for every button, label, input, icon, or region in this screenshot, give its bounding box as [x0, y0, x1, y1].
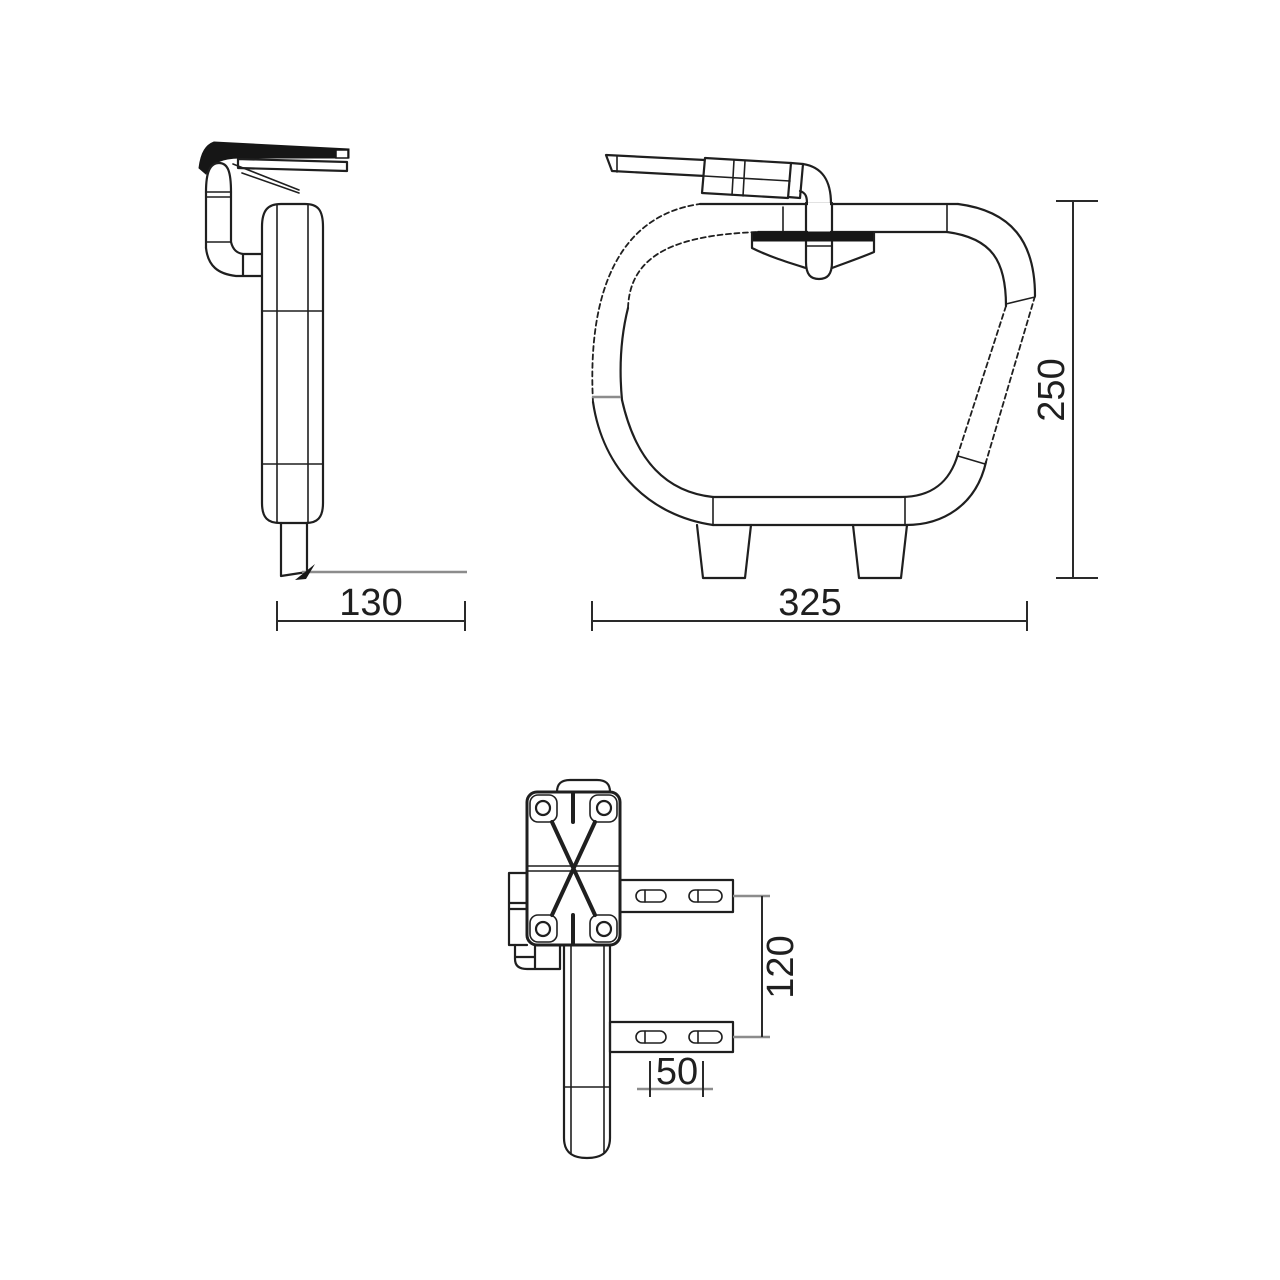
clamp-bar [752, 232, 874, 241]
ring-inner-topleft-arc [628, 232, 758, 308]
arm-tube-lines [206, 192, 231, 242]
ring-inner-diagonal [958, 306, 1006, 454]
dim-120-label: 120 [760, 935, 802, 998]
arm-elbow [206, 242, 262, 276]
ring-outer-topleft-arc [592, 204, 700, 402]
dimension-bracket-spacing: 120 [733, 896, 802, 1037]
upper-slot-bracket [620, 880, 733, 912]
wall-arm [606, 155, 705, 176]
bracket-notch [336, 150, 348, 158]
ring-edge-profile [262, 204, 323, 523]
bracket-plate-edge [238, 159, 347, 171]
drawing-canvas: 130 [0, 0, 1280, 1280]
post-top-cap [557, 780, 610, 792]
dimension-front-width: 325 [592, 582, 1027, 631]
ring-edge-inner-lines [262, 205, 323, 523]
technical-drawing: 130 [0, 0, 1280, 1280]
ring-outer-topright-arc [958, 204, 1035, 296]
mounting-view: 120 50 [509, 780, 802, 1158]
dimension-side-depth: 130 [277, 582, 465, 631]
post-inner-lines [564, 945, 610, 1153]
front-elbow [800, 164, 831, 204]
dim-250-label: 250 [1031, 358, 1073, 421]
side-view: 130 [199, 142, 467, 631]
ring-inner-bottomright-arc [901, 454, 958, 497]
ring-inner-bottomleft-arc [622, 400, 713, 497]
dim-130-label: 130 [339, 582, 402, 624]
dimension-slot-spacing: 50 [637, 1051, 713, 1097]
foot-left [697, 525, 751, 578]
ring-inner-topright-arc [947, 232, 1006, 306]
left-clip [509, 873, 527, 945]
foot-right [853, 525, 907, 578]
lower-stub [281, 523, 307, 576]
ring-outer-bottomleft-arc [593, 402, 713, 525]
front-view: 325 250 [592, 155, 1098, 631]
ring-inner-left [621, 308, 628, 400]
cross-brace [552, 793, 595, 944]
dim-50-label: 50 [656, 1051, 698, 1093]
dimension-front-height: 250 [1031, 201, 1098, 578]
ring-outer-diagonal [986, 296, 1035, 462]
dim-325-label: 325 [778, 582, 841, 624]
lower-slot-bracket [610, 1022, 733, 1052]
lower-foot [515, 945, 560, 969]
arm-tube-dome [206, 163, 231, 192]
arm-tube-edges [206, 192, 231, 248]
ring-outer-bottomright-arc [906, 462, 986, 525]
